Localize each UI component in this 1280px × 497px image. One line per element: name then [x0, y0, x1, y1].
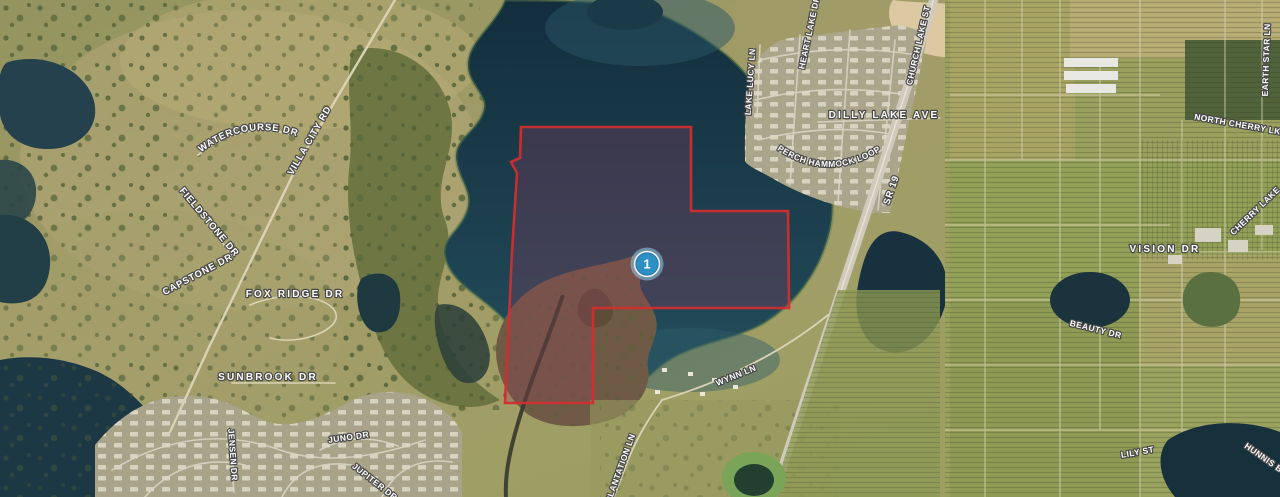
farm-fields — [945, 0, 1280, 497]
greenhouses — [1064, 58, 1118, 93]
road-label-vision: VISION DR — [1130, 244, 1201, 255]
pond-beauty — [1050, 272, 1130, 328]
marker-number: 1 — [643, 257, 650, 272]
satellite-map-view[interactable]: WATERCOURSE DR VILLA CITY RD FIELDSTONE … — [0, 0, 1280, 497]
map-marker-1[interactable]: 1 — [631, 248, 664, 281]
road-label-fox-ridge: FOX RIDGE DR — [246, 289, 345, 300]
pond-green — [1183, 272, 1240, 327]
map-canvas[interactable]: WATERCOURSE DR VILLA CITY RD FIELDSTONE … — [0, 0, 1280, 497]
road-label-dilly-lake: DILLY LAKE AVE — [829, 110, 940, 121]
road-label-sunbrook: SUNBROOK DR — [218, 372, 318, 383]
